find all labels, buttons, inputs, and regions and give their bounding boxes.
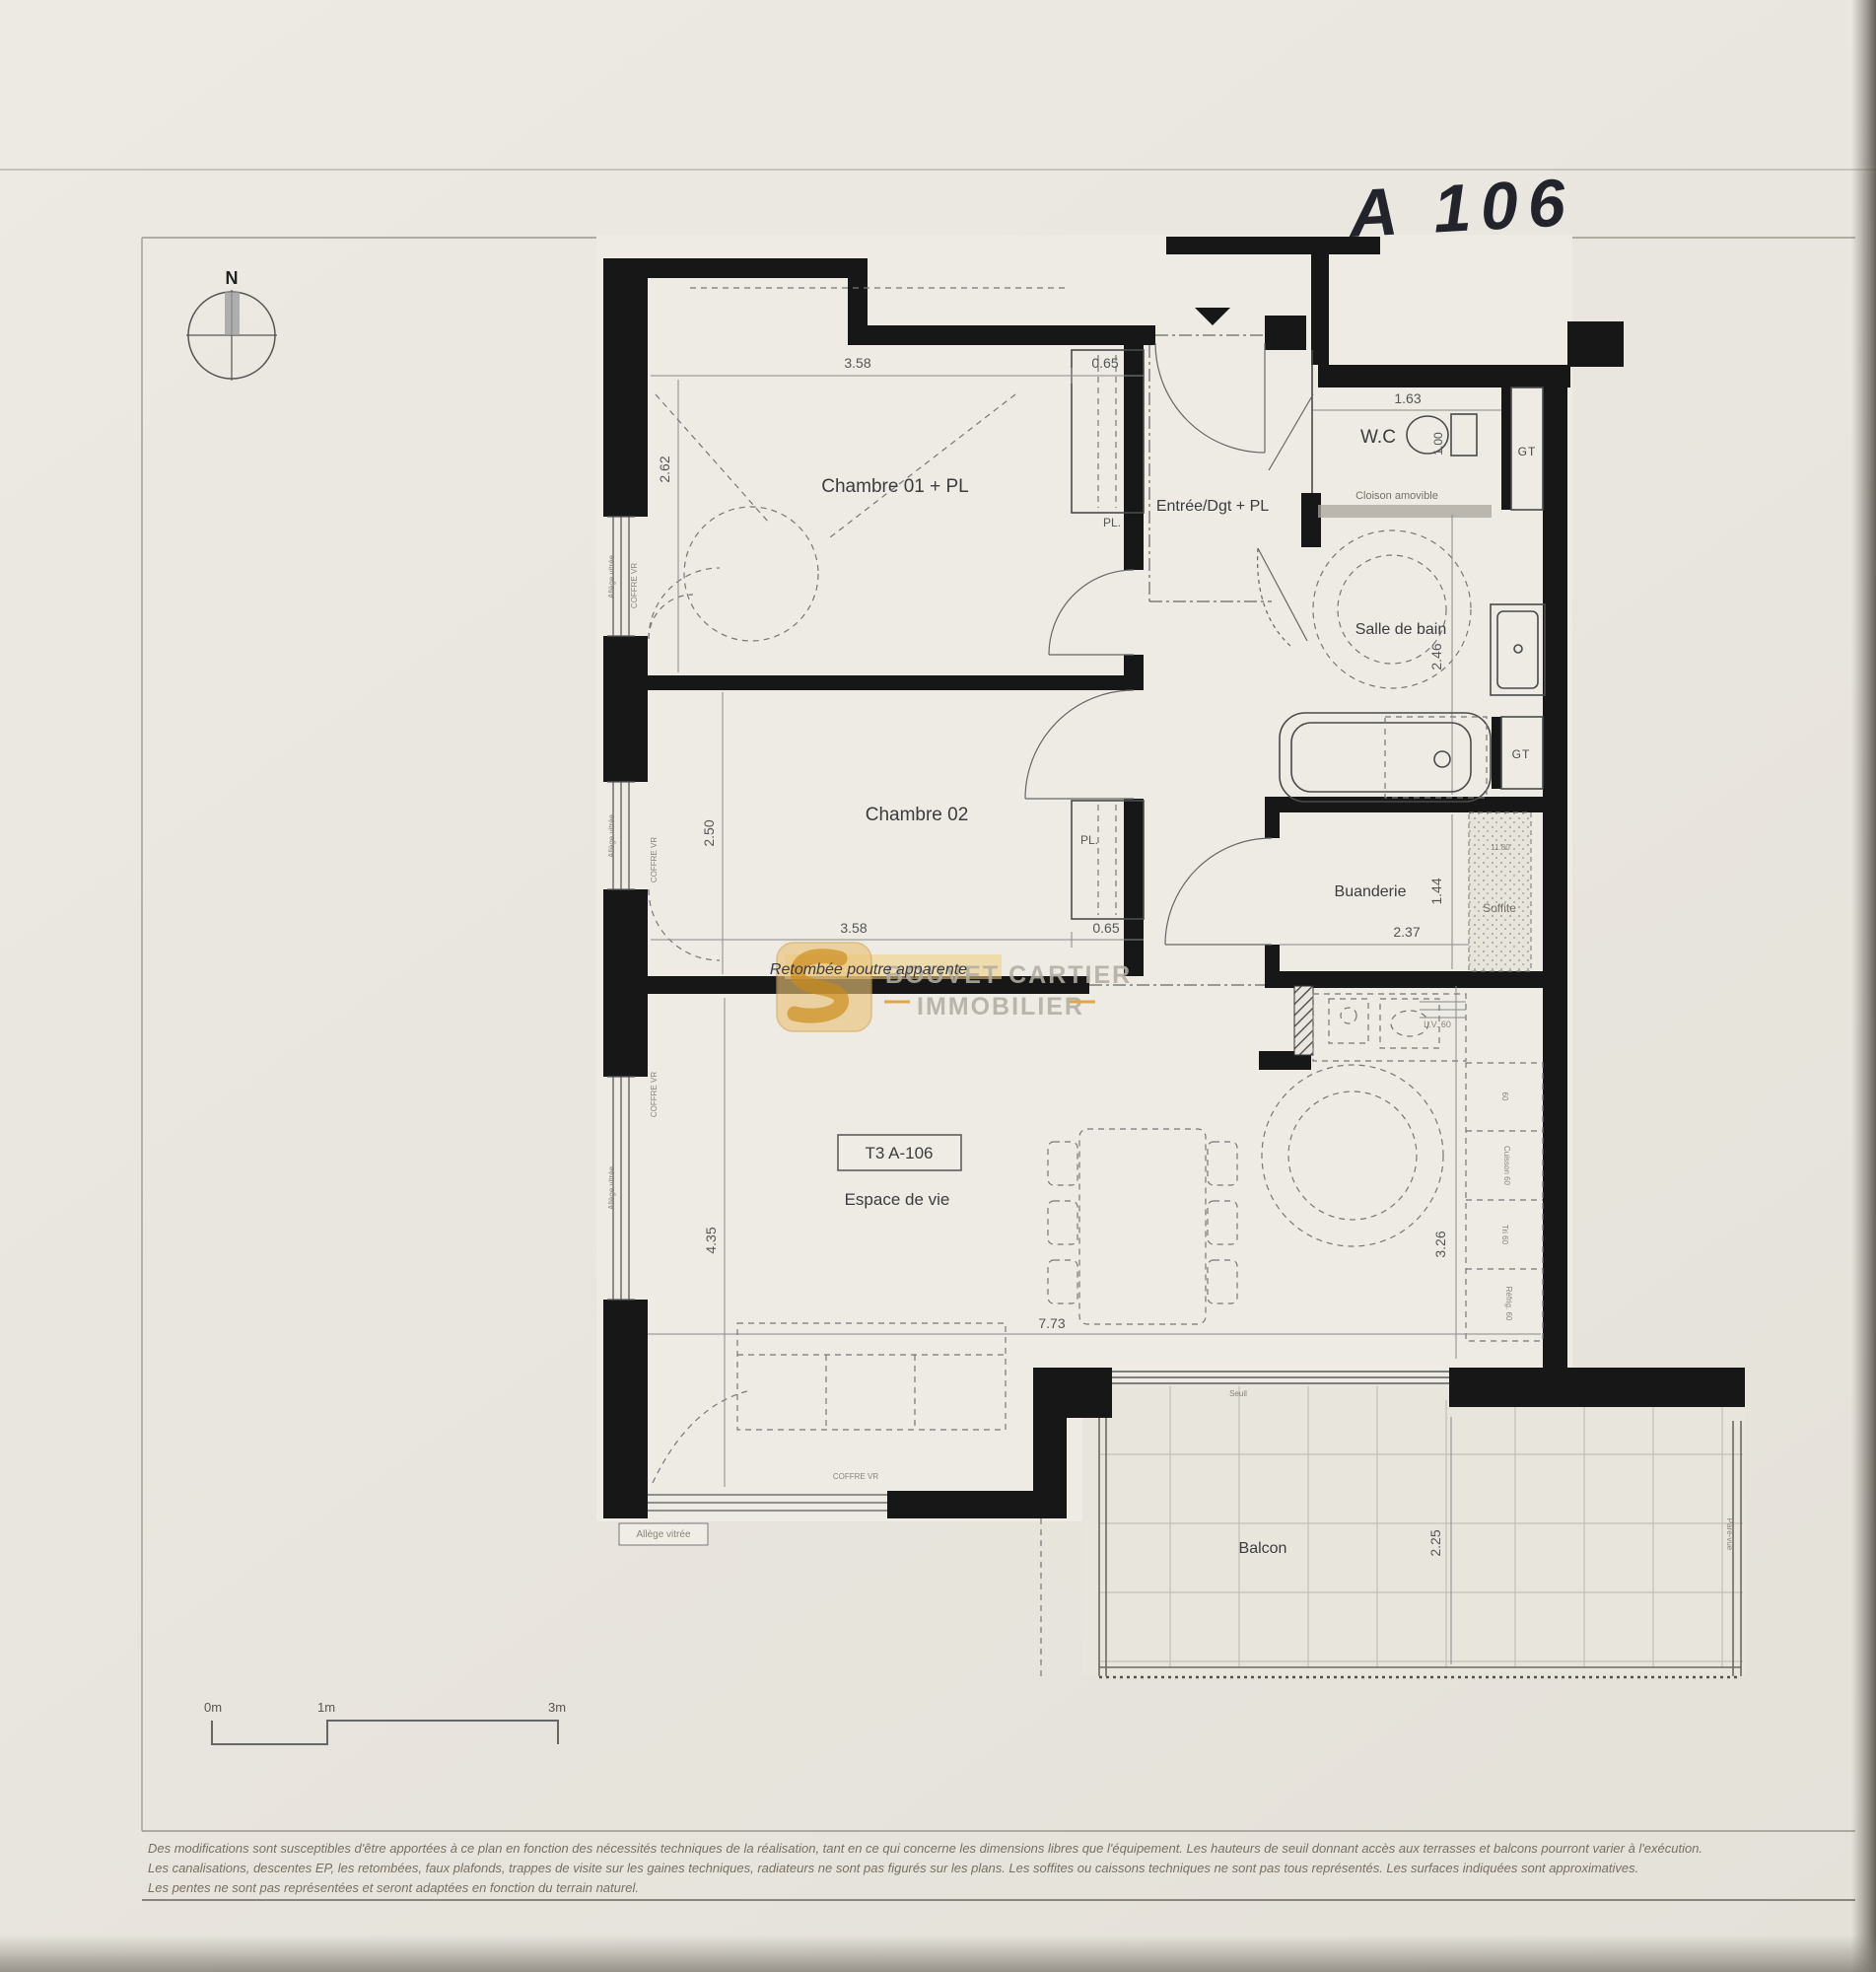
allege-label-4: Allège vitrée (636, 1529, 690, 1540)
watermark-line2: IMMOBILIER (917, 993, 1084, 1021)
espace-height-dim: 4.35 (703, 1227, 719, 1253)
apartment-floor (596, 235, 1572, 1521)
scale-3m: 3m (548, 1700, 566, 1715)
ch02-closet-dim: 0.65 (1092, 920, 1119, 936)
cloison-amovible-label: Cloison amovible (1355, 490, 1438, 502)
kitchen-tri-label: Tri 60 (1500, 1225, 1509, 1245)
scanned-floor-plan-page: Balcon 2.25 Pare-vue Seuil (0, 0, 1876, 1972)
footer-line-1: Des modifications sont susceptibles d'êt… (148, 1841, 1702, 1856)
scale-0m: 0m (204, 1700, 222, 1715)
coffre-label-3: COFFRE VR (650, 1072, 659, 1117)
ch01-closet-dim: 0.65 (1091, 355, 1118, 371)
balcon-depth-dim: 2.25 (1427, 1529, 1443, 1556)
coffre-label-1: COFFRE VR (630, 563, 639, 608)
kitchen-refrig-label: Réfrig. 60 (1504, 1287, 1513, 1321)
ch02-height-dim: 2.50 (701, 819, 717, 846)
wc-depth-dim: 1.00 (1431, 432, 1445, 456)
ch01-width-dim: 3.58 (844, 355, 870, 371)
salle-de-bain-label: Salle de bain (1355, 621, 1447, 638)
soffite-label: Soffite (1483, 901, 1516, 915)
cloison-amovible-bar (1318, 505, 1492, 518)
lv60-label: L.V. 60 (1424, 1020, 1451, 1029)
pare-vue-label: Pare-vue (1725, 1518, 1734, 1551)
balcon-label: Balcon (1239, 1540, 1287, 1557)
compass-north-label: N (226, 268, 239, 288)
allege-label-1: Allège vitrée (607, 554, 616, 599)
buanderie-width-dim: 2.37 (1393, 924, 1420, 940)
floor-plan-canvas: Balcon 2.25 Pare-vue Seuil (0, 0, 1876, 1972)
espace-width-dim: 7.73 (1038, 1315, 1065, 1331)
kitchen-height-dim: 3.26 (1432, 1231, 1448, 1257)
footer-line-2: Les canalisations, descentes EP, les ret… (148, 1861, 1638, 1875)
hatched-pier (1294, 986, 1313, 1055)
seuil-label: Seuil (1229, 1389, 1247, 1398)
allege-label-3: Allège vitrée (607, 1165, 616, 1210)
gt-label-1: GT (1518, 445, 1537, 458)
retombee-label: Retombée poutre apparente (770, 961, 967, 978)
kitchen-cuisson-label: Cuisson 60 (1502, 1146, 1511, 1186)
chambre02-label: Chambre 02 (866, 805, 969, 825)
footer-disclaimer: Des modifications sont susceptibles d'êt… (148, 1841, 1702, 1895)
scale-1m: 1m (317, 1700, 335, 1715)
coffre-label-4: COFFRE VR (833, 1472, 878, 1481)
gt-label-2: GT (1512, 747, 1531, 761)
allege-label-2: Allège vitrée (607, 813, 616, 858)
wc-label: W.C (1360, 427, 1396, 448)
buanderie-label: Buanderie (1335, 883, 1407, 900)
wc-width-dim: 1.63 (1394, 390, 1421, 406)
kitchen-seg1-label: 60 (1500, 1092, 1509, 1101)
compass-needle (225, 292, 240, 335)
soffite-dim: 11.80 (1491, 843, 1510, 852)
coffre-label-2: COFFRE VR (650, 837, 659, 882)
ch01-height-dim: 2.62 (657, 456, 672, 482)
pl-label-ch02: PL. (1080, 833, 1098, 847)
espace-label: Espace de vie (845, 1190, 950, 1209)
chambre01-label: Chambre 01 + PL (821, 476, 968, 497)
footer-line-3: Les pentes ne sont pas représentées et s… (148, 1880, 639, 1895)
handwritten-unit-number: A 106 (1346, 165, 1577, 251)
ch02-width-dim: 3.58 (840, 920, 867, 936)
unit-label: T3 A-106 (866, 1144, 934, 1162)
pl-label-entree: PL. (1103, 516, 1121, 529)
sdb-height-dim: 2.46 (1428, 643, 1444, 669)
balcony: Balcon 2.25 Pare-vue (1041, 1384, 1745, 1677)
compass: N (186, 268, 277, 381)
soffite-hatch (1469, 812, 1531, 971)
scale-bar: 0m 1m 3m (204, 1700, 566, 1744)
buanderie-height-dim: 1.44 (1428, 878, 1444, 904)
entree-label: Entrée/Dgt + PL (1156, 498, 1269, 515)
